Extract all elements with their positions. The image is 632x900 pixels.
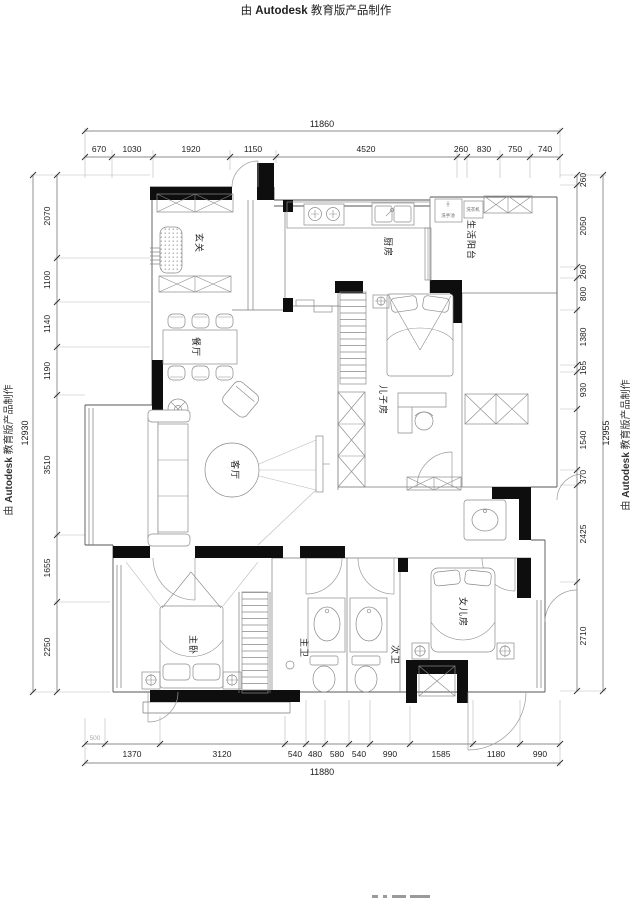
hall-cabinet-icon (407, 477, 461, 490)
svg-text:1540: 1540 (578, 430, 588, 449)
svg-text:1180: 1180 (487, 749, 506, 759)
room-label-daughter: 女儿房 (458, 597, 469, 627)
room-label-kitchen: 厨房 (383, 237, 394, 257)
wash-basin-icon: 洗手池 (435, 199, 462, 222)
sliding-partition-icon (340, 292, 366, 384)
master-bath-toilet-icon (310, 656, 338, 692)
son-room-zone: 儿子房 (373, 294, 528, 433)
svg-text:260: 260 (454, 144, 468, 154)
svg-text:740: 740 (538, 144, 552, 154)
entry-zone: 玄关 (150, 194, 233, 292)
dining-zone: 餐厅 (163, 314, 261, 420)
svg-text:540: 540 (288, 749, 302, 759)
sliding-door-kitchen (296, 300, 332, 312)
svg-text:1655: 1655 (42, 558, 52, 577)
svg-text:洗手池: 洗手池 (441, 212, 455, 219)
top-watermark: 由 Autodesk 教育版产品制作 (241, 3, 392, 17)
coat-cabinet-icon (160, 227, 182, 273)
master-bed-icon (126, 562, 258, 688)
svg-text:990: 990 (383, 749, 397, 759)
room-label-master-bath: 主卫 (299, 638, 310, 658)
room-label-son: 儿子房 (378, 385, 389, 415)
svg-text:2050: 2050 (578, 216, 588, 235)
svg-text:1100: 1100 (42, 271, 52, 290)
svg-text:1030: 1030 (123, 144, 142, 154)
svg-text:4520: 4520 (357, 144, 376, 154)
svg-text:260: 260 (578, 265, 588, 279)
svg-text:830: 830 (477, 144, 491, 154)
svg-text:3120: 3120 (213, 749, 232, 759)
svg-text:1920: 1920 (182, 144, 201, 154)
son-wardrobe-icon (465, 394, 528, 424)
room-label-dining: 餐厅 (191, 337, 202, 357)
balcony-zone: 洗手池 洗衣机 生活阳台 (435, 196, 532, 260)
svg-text:750: 750 (508, 144, 522, 154)
hall-basin-icon (464, 500, 506, 540)
room-label-balcony: 生活阳台 (466, 220, 477, 260)
footer-watermark-fragment (372, 895, 430, 898)
kitchen-sink-icon (372, 203, 414, 225)
dimension-chain-right: 260 2050 260 800 1380 165 930 1540 370 2… (560, 172, 611, 694)
master-bath-vanity-icon (308, 598, 345, 652)
second-bath-toilet-icon (352, 656, 380, 692)
svg-text:1370: 1370 (123, 749, 142, 759)
svg-text:2070: 2070 (42, 206, 52, 225)
svg-text:480: 480 (308, 749, 322, 759)
svg-text:1380: 1380 (578, 327, 588, 346)
svg-text:1190: 1190 (42, 362, 52, 381)
dimension-chain-bottom: 500 1370 3120 540 480 580 540 990 1585 1… (82, 700, 563, 777)
dim-right-total: 12955 (601, 420, 611, 445)
dim-top-total: 11860 (310, 119, 334, 129)
dimension-chain-top: 11860 670 1030 1920 1150 4520 260 830 75… (82, 119, 563, 178)
svg-text:540: 540 (352, 749, 366, 759)
svg-text:800: 800 (578, 287, 588, 301)
svg-text:2425: 2425 (578, 524, 588, 543)
radiator-icon (150, 248, 160, 264)
room-label-master: 主卧 (188, 635, 199, 655)
svg-text:370: 370 (578, 470, 588, 484)
floor-plan-page: 由 Autodesk 教育版产品制作 由 Autodesk 教育版产品制作 由 … (0, 0, 632, 900)
dim-bottom-pre: 500 (90, 735, 101, 742)
floor-plan-canvas: 由 Autodesk 教育版产品制作 由 Autodesk 教育版产品制作 由 … (0, 0, 632, 900)
room-label-second-bath: 次卫 (390, 645, 401, 665)
room-label-living: 客厅 (230, 460, 241, 480)
sofa-icon (148, 410, 190, 546)
stove-icon (304, 204, 344, 225)
right-watermark: 由 Autodesk 教育版产品制作 (619, 379, 632, 510)
left-watermark: 由 Autodesk 教育版产品制作 (2, 384, 15, 515)
son-desk-icon (398, 393, 446, 433)
washing-machine-icon: 洗衣机 (464, 201, 483, 218)
tv-icon (316, 436, 330, 492)
armchair-icon (220, 379, 261, 420)
son-bed-icon (387, 294, 453, 376)
svg-text:670: 670 (92, 144, 106, 154)
svg-text:260: 260 (578, 173, 588, 187)
dim-bottom-total: 11880 (310, 767, 334, 777)
svg-text:1585: 1585 (432, 749, 451, 759)
dim-left-total: 12930 (20, 420, 30, 445)
balcony-cabinet-icon (484, 196, 532, 213)
svg-text:165: 165 (578, 361, 588, 375)
svg-text:洗衣机: 洗衣机 (466, 206, 480, 213)
svg-text:1150: 1150 (244, 144, 263, 154)
svg-text:2250: 2250 (42, 637, 52, 656)
master-wardrobe-icon (242, 592, 268, 693)
master-zone: 主卧 (126, 562, 270, 693)
room-label-entry: 玄关 (194, 233, 205, 253)
living-zone: 客厅 (148, 410, 330, 546)
second-bath-vanity-icon (350, 598, 387, 652)
svg-text:990: 990 (533, 749, 547, 759)
svg-text:2710: 2710 (578, 626, 588, 645)
svg-text:930: 930 (578, 383, 588, 397)
light-switch-icon (373, 295, 389, 308)
svg-text:580: 580 (330, 749, 344, 759)
bathrooms-zone: 主卫 次卫 (286, 598, 401, 692)
floor-drain-icon (286, 661, 294, 669)
svg-text:1140: 1140 (42, 315, 52, 334)
corridor-cabinet-icon (338, 392, 365, 487)
svg-text:3510: 3510 (42, 455, 52, 474)
